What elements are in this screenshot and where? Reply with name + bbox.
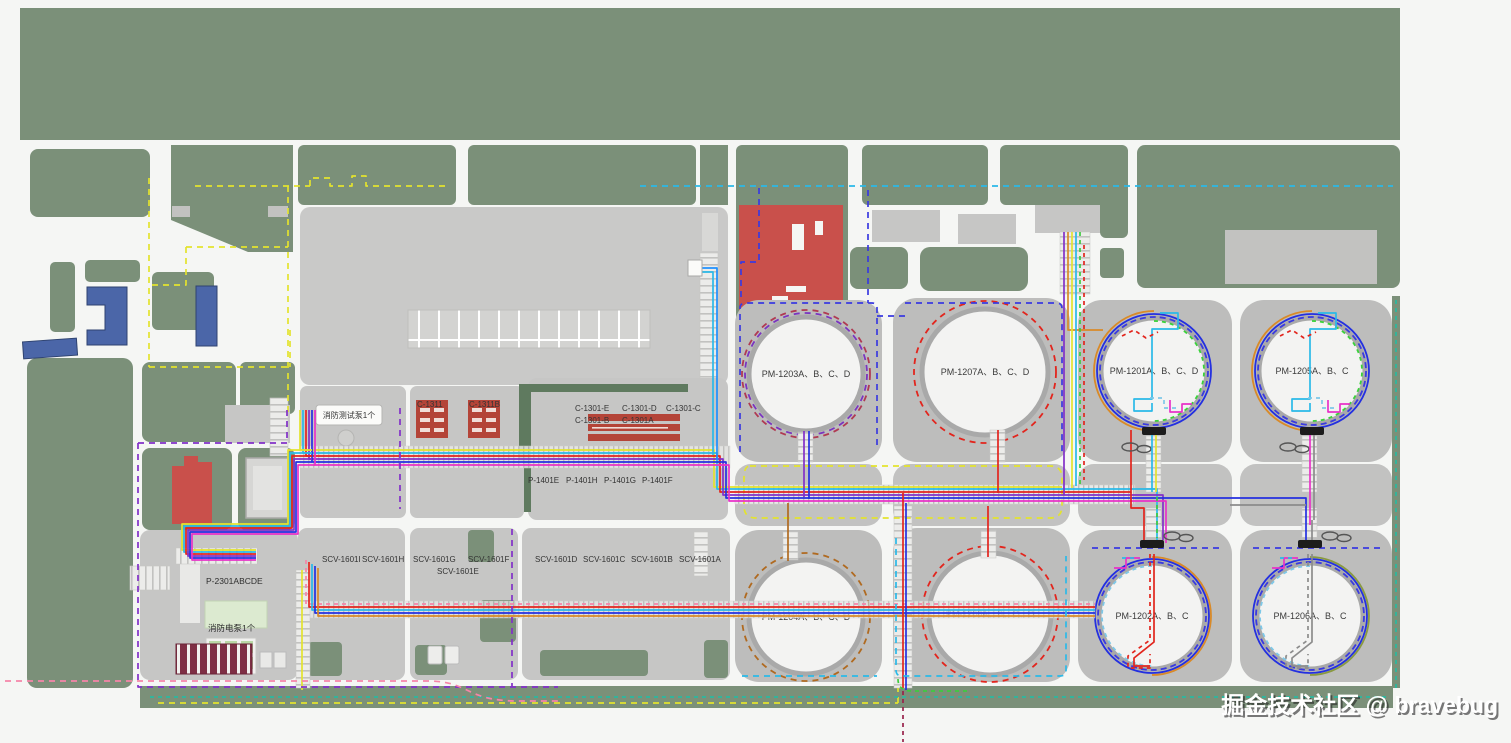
tank-label: PM-1202A、B、C — [1115, 611, 1189, 621]
site-plan-svg: 消防测试泵1个 C-1311 C-1311B C-1301-E C-1301-D… — [0, 0, 1511, 743]
scv1601e-label: SCV-1601E — [437, 567, 479, 576]
c1311-label: C-1311 — [417, 400, 443, 409]
scv1601c-label: SCV-1601C — [583, 555, 625, 564]
c1301d-label: C-1301-D — [622, 404, 657, 413]
watermark-text: 掘金技术社区 @ bravebug — [1221, 692, 1498, 718]
north-green-belt — [20, 8, 1400, 140]
cable-tray-pumphouse — [130, 566, 170, 590]
site-plan-canvas: 消防测试泵1个 C-1311 C-1311B C-1301-E C-1301-D… — [0, 0, 1511, 743]
c1301e-label: C-1301-E — [575, 404, 609, 413]
gray-building-north-1 — [872, 210, 940, 242]
scv1601h-label: SCV-1601H — [362, 555, 404, 564]
scv1601b-label: SCV-1601B — [631, 555, 673, 564]
tank-label: PM-1203A、B、C、D — [762, 369, 851, 379]
scv1601i-label: SCV-1601I — [322, 555, 361, 564]
fire-electric-pump-label: 消防电泵1个 — [208, 623, 256, 633]
tank-label: PM-1207A、B、C、D — [941, 367, 1030, 377]
tank-pm-1207: PM-1207A、B、C、D — [893, 298, 1070, 462]
blue-building-west — [23, 338, 78, 359]
warehouse-racking — [408, 310, 650, 348]
c1301b-label: C-1301-B — [575, 416, 609, 425]
watermark: 掘金技术社区 @ bravebug 掘金技术社区 @ bravebug — [1221, 692, 1500, 720]
tank-pm-1206: PM-1206A、B、C — [1240, 530, 1392, 682]
scv1601f-label: SCV-1601F — [468, 555, 509, 564]
scv1601g-label: SCV-1601G — [413, 555, 456, 564]
gray-building-northeast — [1225, 230, 1377, 284]
cable-tray-west — [270, 398, 288, 456]
p1401g-label: P-1401G — [604, 476, 636, 485]
tank-label: PM-1206A、B、C — [1273, 611, 1347, 621]
gray-building-north-2 — [958, 214, 1016, 244]
c1301c-label: C-1301-C — [666, 404, 701, 413]
louver-structure — [176, 644, 252, 674]
tank-pm-1202: PM-1202A、B、C — [1078, 530, 1232, 682]
p1401h-label: P-1401H — [566, 476, 598, 485]
warehouse-building — [300, 207, 728, 385]
blue-building-mid — [196, 286, 217, 346]
p1401e-label: P-1401E — [528, 476, 559, 485]
fire-test-pump-label: 消防测试泵1个 — [323, 410, 375, 420]
red-building-west — [172, 456, 212, 524]
scv1601a-label: SCV-1601A — [679, 555, 721, 564]
tank-label: PM-1201A、B、C、D — [1110, 366, 1199, 376]
p2301-label: P-2301ABCDE — [206, 576, 263, 586]
c1311b-label: C-1311B — [469, 400, 500, 409]
scv1601d-label: SCV-1601D — [535, 555, 577, 564]
c1301a-label: C-1301A — [622, 416, 654, 425]
p1401f-label: P-1401F — [642, 476, 673, 485]
tank-label: PM-1205A、B、C — [1275, 366, 1349, 376]
